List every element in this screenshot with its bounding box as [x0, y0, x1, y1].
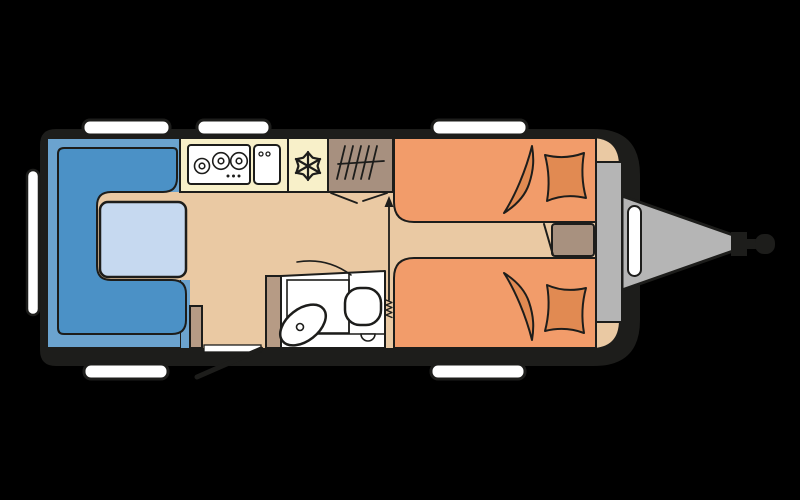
cabinet-by-bathroom [266, 276, 281, 348]
cabinet-by-door [190, 306, 202, 348]
toilet-icon [345, 288, 381, 325]
window-bottom-2 [431, 364, 525, 379]
window-bottom-1 [84, 364, 168, 379]
window-rear [27, 170, 39, 315]
floorplan-canvas [0, 0, 800, 500]
knob-dot [238, 175, 241, 178]
hob-icon [188, 145, 250, 184]
window-top-2 [197, 120, 270, 135]
window-top-1 [83, 120, 170, 135]
toilet-base [361, 334, 375, 341]
pillow [545, 153, 586, 201]
knob-dot [227, 175, 230, 178]
dinette-table [100, 202, 186, 277]
dinette [47, 138, 192, 348]
bathroom [273, 261, 385, 354]
nightstand [552, 224, 594, 256]
window-top-3 [432, 120, 527, 135]
pillow [545, 285, 586, 333]
front-storage [596, 162, 622, 322]
hitch-ball-cover [755, 234, 775, 254]
jockey-wheel [628, 206, 641, 276]
knob-dot [232, 175, 235, 178]
kitchen-sink-icon [254, 145, 280, 184]
hob-knobs [227, 175, 241, 178]
hitch-coupling [731, 232, 747, 256]
